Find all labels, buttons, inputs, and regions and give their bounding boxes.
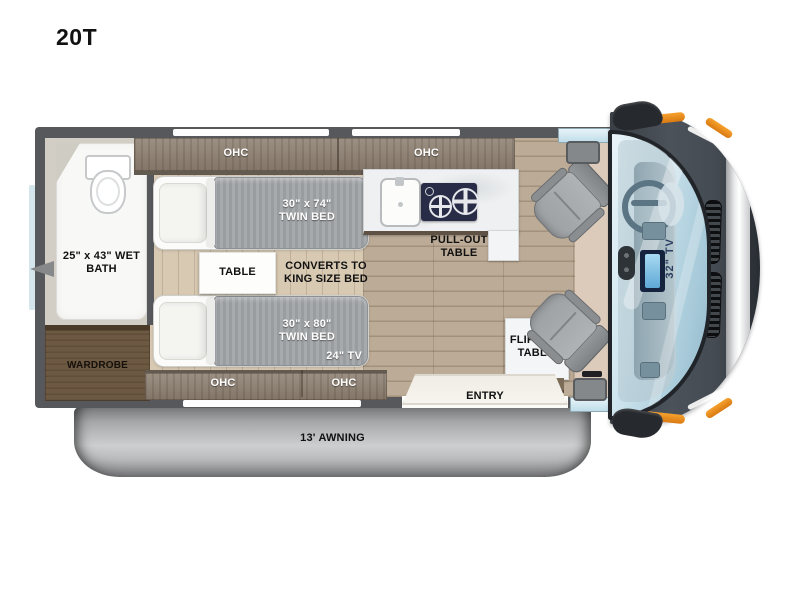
door-step-bar bbox=[582, 371, 602, 377]
dash-vent-icon bbox=[642, 302, 666, 320]
sheet-fold bbox=[207, 179, 215, 247]
entry-label: ENTRY bbox=[402, 390, 568, 403]
shifter-console bbox=[618, 246, 635, 280]
window-top-bedroom bbox=[173, 129, 329, 136]
pull-out-table-label: PULL-OUT TABLE bbox=[414, 234, 504, 261]
twin-bed-bottom-label: 30" x 80" TWIN BED bbox=[270, 318, 344, 345]
window-top-kitchen bbox=[352, 129, 460, 136]
cooktop-knob-icon bbox=[425, 187, 434, 196]
kitchen-counter bbox=[363, 169, 519, 235]
burner-icon bbox=[429, 195, 452, 218]
window-bottom-bedroom bbox=[183, 400, 361, 407]
ohc-label-bottom-right: OHC bbox=[301, 377, 387, 390]
bedroom-tv-label: 24" TV bbox=[300, 350, 362, 363]
converts-king-label: CONVERTS TO KING SIZE BED bbox=[278, 260, 374, 287]
ohc-label-bottom-left: OHC bbox=[145, 377, 301, 390]
floorplan-page: 20T 13' AWNING 25" x 43" WET BATH WARDRO… bbox=[0, 0, 800, 600]
van-silver-stripe bbox=[726, 136, 750, 400]
cab-tv-label: 32" TV bbox=[664, 238, 676, 279]
pillow bbox=[159, 183, 207, 243]
cooktop-icon bbox=[421, 183, 477, 221]
cab-console-bottom bbox=[573, 378, 607, 401]
dash-vent-icon bbox=[642, 222, 666, 240]
cab-tv-icon bbox=[640, 250, 665, 292]
floorplan-model-title: 20T bbox=[56, 24, 97, 51]
wet-bath-label: 25" x 43" WET BATH bbox=[56, 250, 147, 277]
pillow bbox=[159, 302, 207, 360]
wardrobe-label: WARDROBE bbox=[45, 360, 150, 372]
toilet-icon bbox=[90, 170, 126, 214]
door-swing-arrow-icon bbox=[30, 261, 54, 277]
dash-airbag bbox=[658, 182, 684, 226]
dash-vent-icon bbox=[640, 362, 660, 378]
bath-window bbox=[29, 185, 35, 310]
sink-icon bbox=[380, 178, 421, 227]
burner-icon bbox=[452, 188, 479, 215]
cab-console-top bbox=[566, 141, 600, 164]
twin-bed-top-label: 30" x 74" TWIN BED bbox=[270, 198, 344, 225]
sheet-fold bbox=[207, 298, 215, 364]
awning-label: 13' AWNING bbox=[74, 432, 591, 445]
table-label: TABLE bbox=[199, 266, 276, 279]
ohc-label-top-right: OHC bbox=[338, 147, 515, 160]
ohc-label-top-left: OHC bbox=[134, 147, 338, 160]
